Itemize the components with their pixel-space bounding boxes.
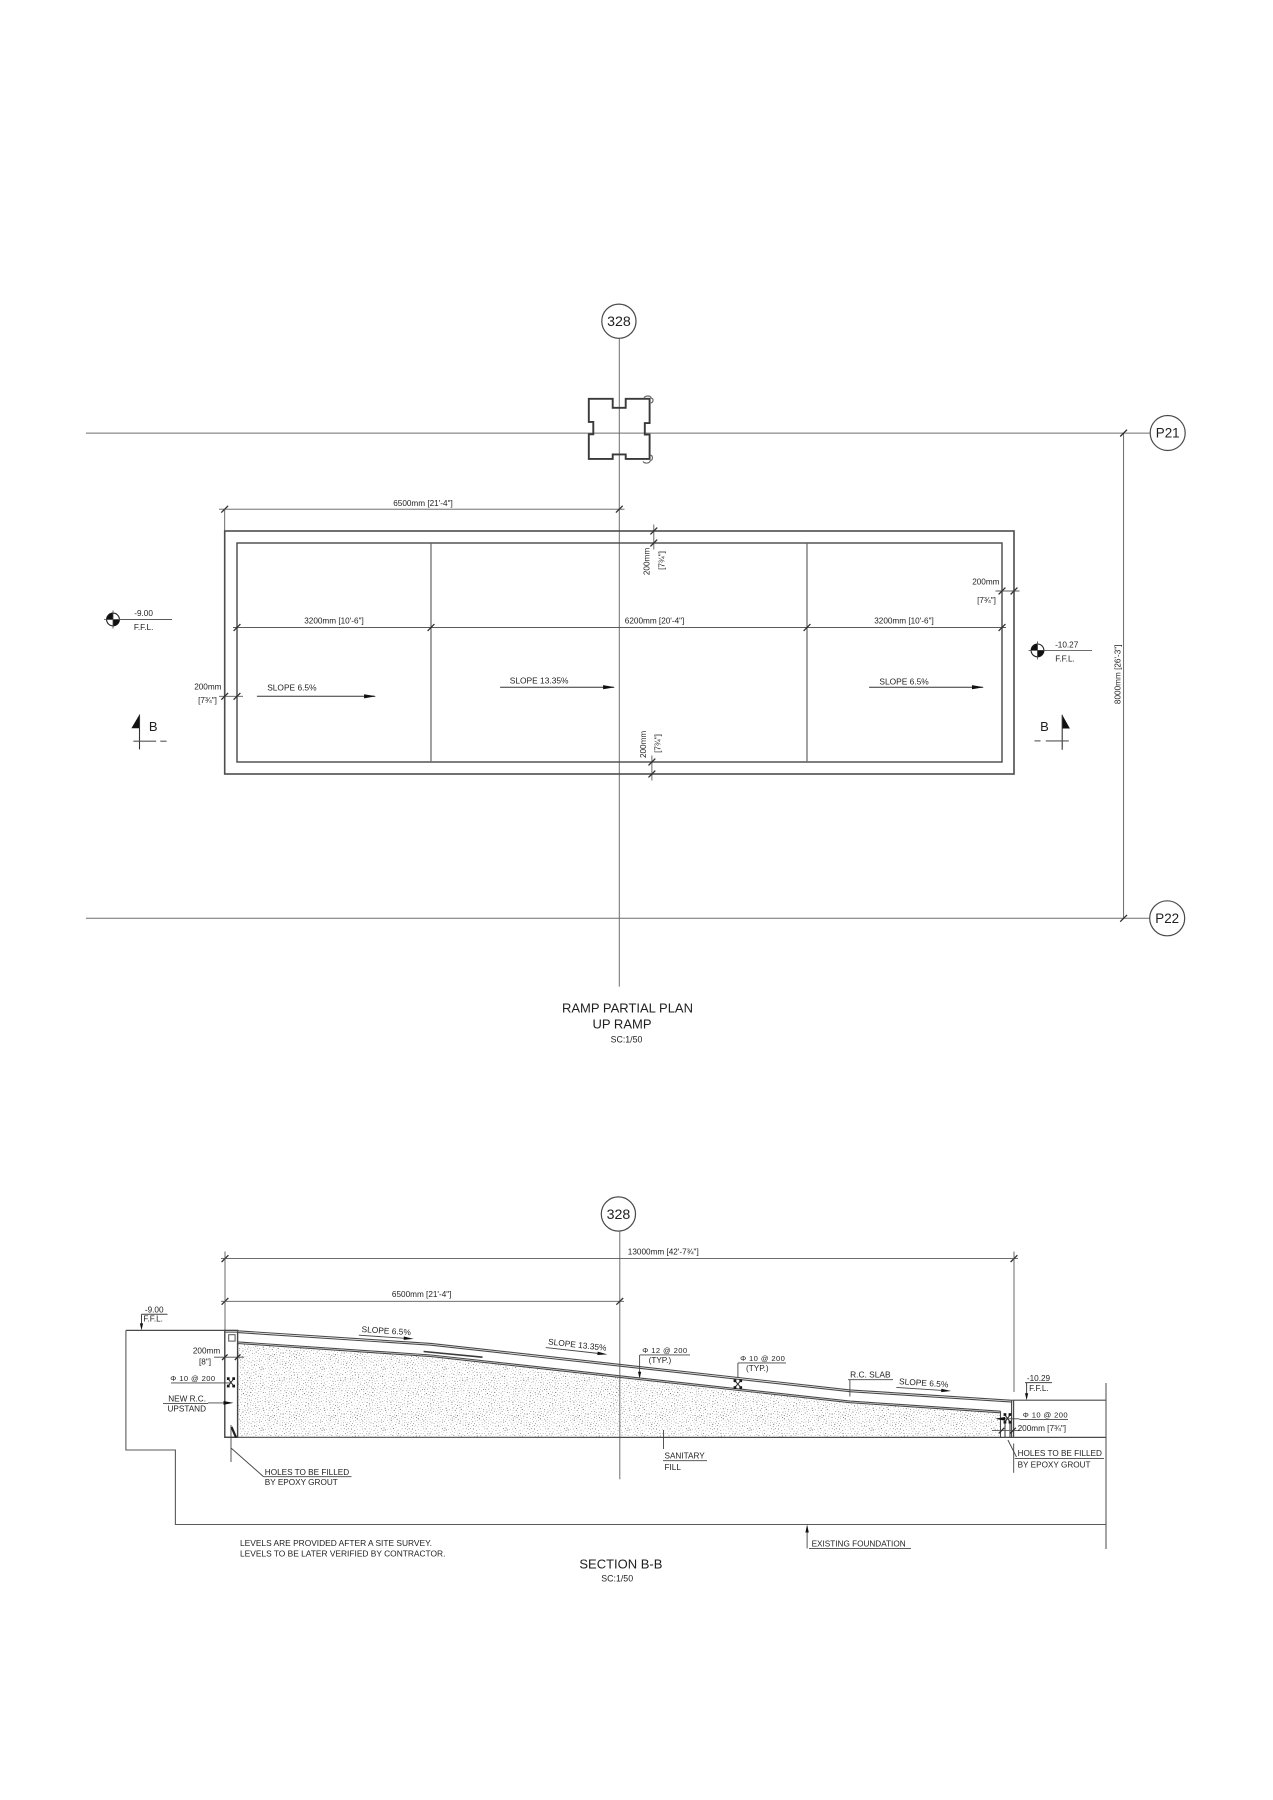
svg-text:-9.00: -9.00 (134, 609, 153, 618)
svg-text:UPSTAND: UPSTAND (167, 1404, 206, 1413)
svg-text:F.F.L.: F.F.L. (134, 623, 154, 632)
svg-text:200mm: 200mm (194, 682, 221, 691)
svg-text:BY EPOXY GROUT: BY EPOXY GROUT (1018, 1461, 1091, 1470)
svg-text:Φ 10 @ 200: Φ 10 @ 200 (1023, 1411, 1068, 1420)
svg-text:-9.00: -9.00 (145, 1306, 164, 1315)
svg-text:SLOPE 6.5%: SLOPE 6.5% (267, 683, 317, 693)
svg-text:SANITARY: SANITARY (665, 1452, 706, 1461)
svg-text:NEW R.C.: NEW R.C. (168, 1395, 206, 1404)
svg-text:B: B (1040, 719, 1049, 734)
svg-text:Φ 12 @ 200: Φ 12 @ 200 (642, 1346, 687, 1355)
svg-text:UP RAMP: UP RAMP (593, 1017, 652, 1032)
svg-text:3200mm [10'-6"]: 3200mm [10'-6"] (874, 617, 934, 626)
svg-text:6200mm [20'-4"]: 6200mm [20'-4"] (625, 617, 685, 626)
svg-text:[7¾"]: [7¾"] (977, 596, 996, 605)
svg-text:6500mm [21'-4"]: 6500mm [21'-4"] (393, 499, 453, 508)
svg-text:LEVELS ARE PROVIDED AFTER A SI: LEVELS ARE PROVIDED AFTER A SITE SURVEY. (240, 1538, 432, 1548)
svg-text:-10.27: -10.27 (1055, 641, 1079, 650)
svg-text:SC:1/50: SC:1/50 (611, 1035, 643, 1045)
svg-text:EXISTING FOUNDATION: EXISTING FOUNDATION (812, 1539, 906, 1548)
svg-text:[7¾"]: [7¾"] (198, 696, 217, 705)
svg-text:R.C. SLAB: R.C. SLAB (850, 1370, 891, 1380)
svg-text:[8"]: [8"] (199, 1357, 211, 1366)
svg-text:(TYP.): (TYP.) (649, 1356, 672, 1365)
svg-text:B: B (149, 719, 158, 734)
svg-text:LEVELS TO BE LATER VERIFIED BY: LEVELS TO BE LATER VERIFIED BY CONTRACTO… (240, 1548, 445, 1558)
svg-text:3200mm [10'-6"]: 3200mm [10'-6"] (304, 617, 364, 626)
svg-text:328: 328 (607, 314, 631, 330)
svg-text:-10.29: -10.29 (1027, 1374, 1051, 1383)
svg-text:[7¾"]: [7¾"] (654, 734, 663, 753)
svg-text:F.F.L.: F.F.L. (1055, 655, 1075, 664)
svg-text:SC:1/50: SC:1/50 (601, 1573, 633, 1583)
svg-text:BY EPOXY GROUT: BY EPOXY GROUT (265, 1478, 338, 1487)
svg-text:F.F.L.: F.F.L. (143, 1314, 163, 1323)
svg-text:Φ 10 @ 200: Φ 10 @ 200 (170, 1374, 215, 1383)
svg-text:RAMP PARTIAL PLAN: RAMP PARTIAL PLAN (562, 1001, 693, 1016)
svg-text:13000mm [42'-7¾"]: 13000mm [42'-7¾"] (628, 1248, 699, 1257)
svg-text:6500mm [21'-4"]: 6500mm [21'-4"] (392, 1290, 452, 1299)
svg-text:200mm: 200mm (642, 548, 651, 575)
svg-text:200mm [7¾"]: 200mm [7¾"] (1018, 1424, 1066, 1433)
svg-text:F.F.L.: F.F.L. (1029, 1384, 1049, 1393)
svg-text:SLOPE 13.35%: SLOPE 13.35% (510, 675, 569, 685)
svg-text:FILL: FILL (665, 1463, 682, 1472)
svg-text:(TYP.): (TYP.) (746, 1364, 769, 1373)
svg-text:SLOPE 6.5%: SLOPE 6.5% (879, 677, 929, 687)
svg-text:HOLES TO BE FILLED: HOLES TO BE FILLED (265, 1468, 349, 1477)
svg-text:328: 328 (607, 1207, 631, 1223)
svg-text:[7¾"]: [7¾"] (657, 551, 666, 570)
svg-text:HOLES TO BE FILLED: HOLES TO BE FILLED (1018, 1449, 1102, 1458)
svg-text:P22: P22 (1155, 911, 1179, 926)
svg-text:200mm: 200mm (193, 1347, 220, 1356)
svg-text:200mm: 200mm (972, 577, 999, 586)
svg-text:P21: P21 (1156, 426, 1180, 441)
svg-text:8000mm [26'-3"]: 8000mm [26'-3"] (1113, 645, 1122, 705)
svg-text:Φ 10 @ 200: Φ 10 @ 200 (740, 1354, 785, 1363)
svg-text:SECTION B-B: SECTION B-B (579, 1556, 662, 1571)
svg-text:200mm: 200mm (639, 731, 648, 758)
